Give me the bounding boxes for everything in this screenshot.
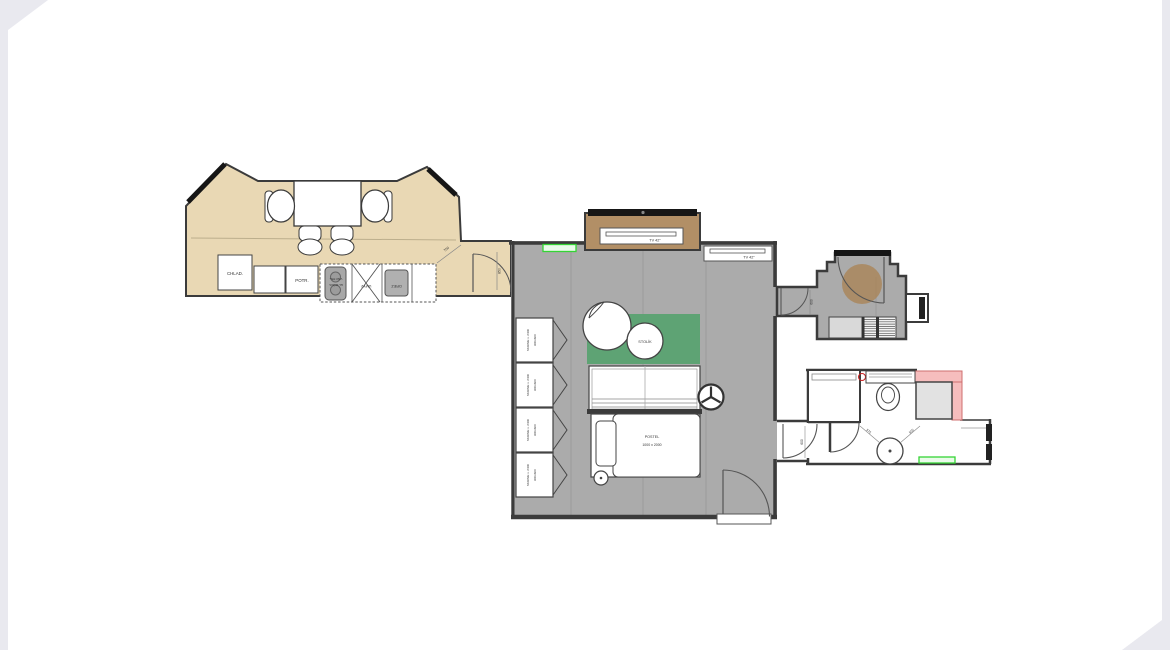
washing-machine <box>877 438 903 464</box>
window-joint <box>641 211 644 214</box>
tv-side-label: TV 42" <box>743 256 755 260</box>
sink-label: DREZ <box>391 284 402 288</box>
entry-window-icon <box>834 250 891 256</box>
page-edge-right <box>1162 0 1170 650</box>
highlight-green-bar-1 <box>543 245 576 252</box>
dining-chair-left <box>265 190 295 222</box>
tv-shelf-main <box>600 228 683 244</box>
toilet <box>877 384 900 411</box>
tv-shelf-side <box>704 246 772 261</box>
page-edge-left <box>0 0 8 650</box>
bed-label-2: 1000 x 2000 <box>642 443 661 447</box>
dining-chair-right <box>362 190 393 222</box>
wardrobe-3-label-1: SKRINE v. 2400 <box>526 419 530 442</box>
floor-plan-drawing: CHLAD. POTR. VAR.TB+ EL.RÚRA UMYV. DREZ … <box>0 0 1170 650</box>
floor-plan-page: CHLAD. POTR. VAR.TB+ EL.RÚRA UMYV. DREZ … <box>0 0 1170 650</box>
dining-chair-bottom-2 <box>330 226 354 255</box>
entry-side-window <box>906 294 928 322</box>
wardrobe-4-label-1: SKRINE v. 2400 <box>526 464 530 487</box>
shower-wall-pink-right <box>952 382 962 420</box>
kitchen-dining-room: CHLAD. POTR. VAR.TB+ EL.RÚRA UMYV. DREZ … <box>186 164 511 302</box>
sink <box>385 270 408 296</box>
headboard <box>587 409 702 414</box>
pantry-label: POTR. <box>295 278 308 283</box>
dim-kitchen-door: 850 <box>498 268 502 274</box>
page-corner-top-left <box>8 0 48 30</box>
counter-cabinet <box>254 266 285 293</box>
pillow <box>596 421 616 466</box>
entry-room: 600 <box>777 250 928 339</box>
bed-label-1: POSTEL <box>645 435 660 439</box>
wardrobe-2-label-1: SKRINE v. 2400 <box>526 374 530 397</box>
entry-bench <box>829 317 862 338</box>
bathroom-closet <box>808 370 860 422</box>
wardrobe-1-label-1: SKRINE v. 2400 <box>526 329 530 352</box>
wardrobe-3-label-2: 900x600 <box>533 424 537 436</box>
wardrobe-4-label-2: 900x600 <box>533 469 537 481</box>
sofa <box>589 366 700 412</box>
wardrobe-1-label-2: 900x600 <box>533 334 537 346</box>
dining-table <box>294 181 361 226</box>
shoe-rack <box>862 317 896 338</box>
washbasin-counter <box>866 371 915 383</box>
bedroom-living-room: TV 42" TV 42" SKRINE v. 2400 900x600 SKR… <box>509 209 777 524</box>
fridge-label: CHLAD. <box>227 271 243 276</box>
washbasin-label: UMYV. <box>361 284 372 288</box>
highlight-green-bar-2 <box>919 457 955 463</box>
dim-bath-door: 600 <box>800 439 804 445</box>
shower-wall-pink-top <box>915 371 962 382</box>
tv-main-label: TV 42" <box>649 239 661 243</box>
stool <box>594 471 608 485</box>
side-table-label: STOLÍK <box>638 340 652 344</box>
armchair <box>583 302 631 350</box>
dining-chair-bottom-1 <box>298 226 322 255</box>
wardrobe-2-label-2: 900x600 <box>533 379 537 391</box>
shower <box>916 382 952 419</box>
dim-entry-door: 600 <box>810 299 814 305</box>
cooktop-label-2: EL.RÚRA <box>328 283 342 287</box>
cooktop-label-1: VAR.TB+ <box>329 277 342 281</box>
page-corner-bottom-right <box>1122 620 1162 650</box>
ceiling-fan-icon <box>699 385 724 410</box>
bathroom: 600 575 555 <box>777 369 992 465</box>
